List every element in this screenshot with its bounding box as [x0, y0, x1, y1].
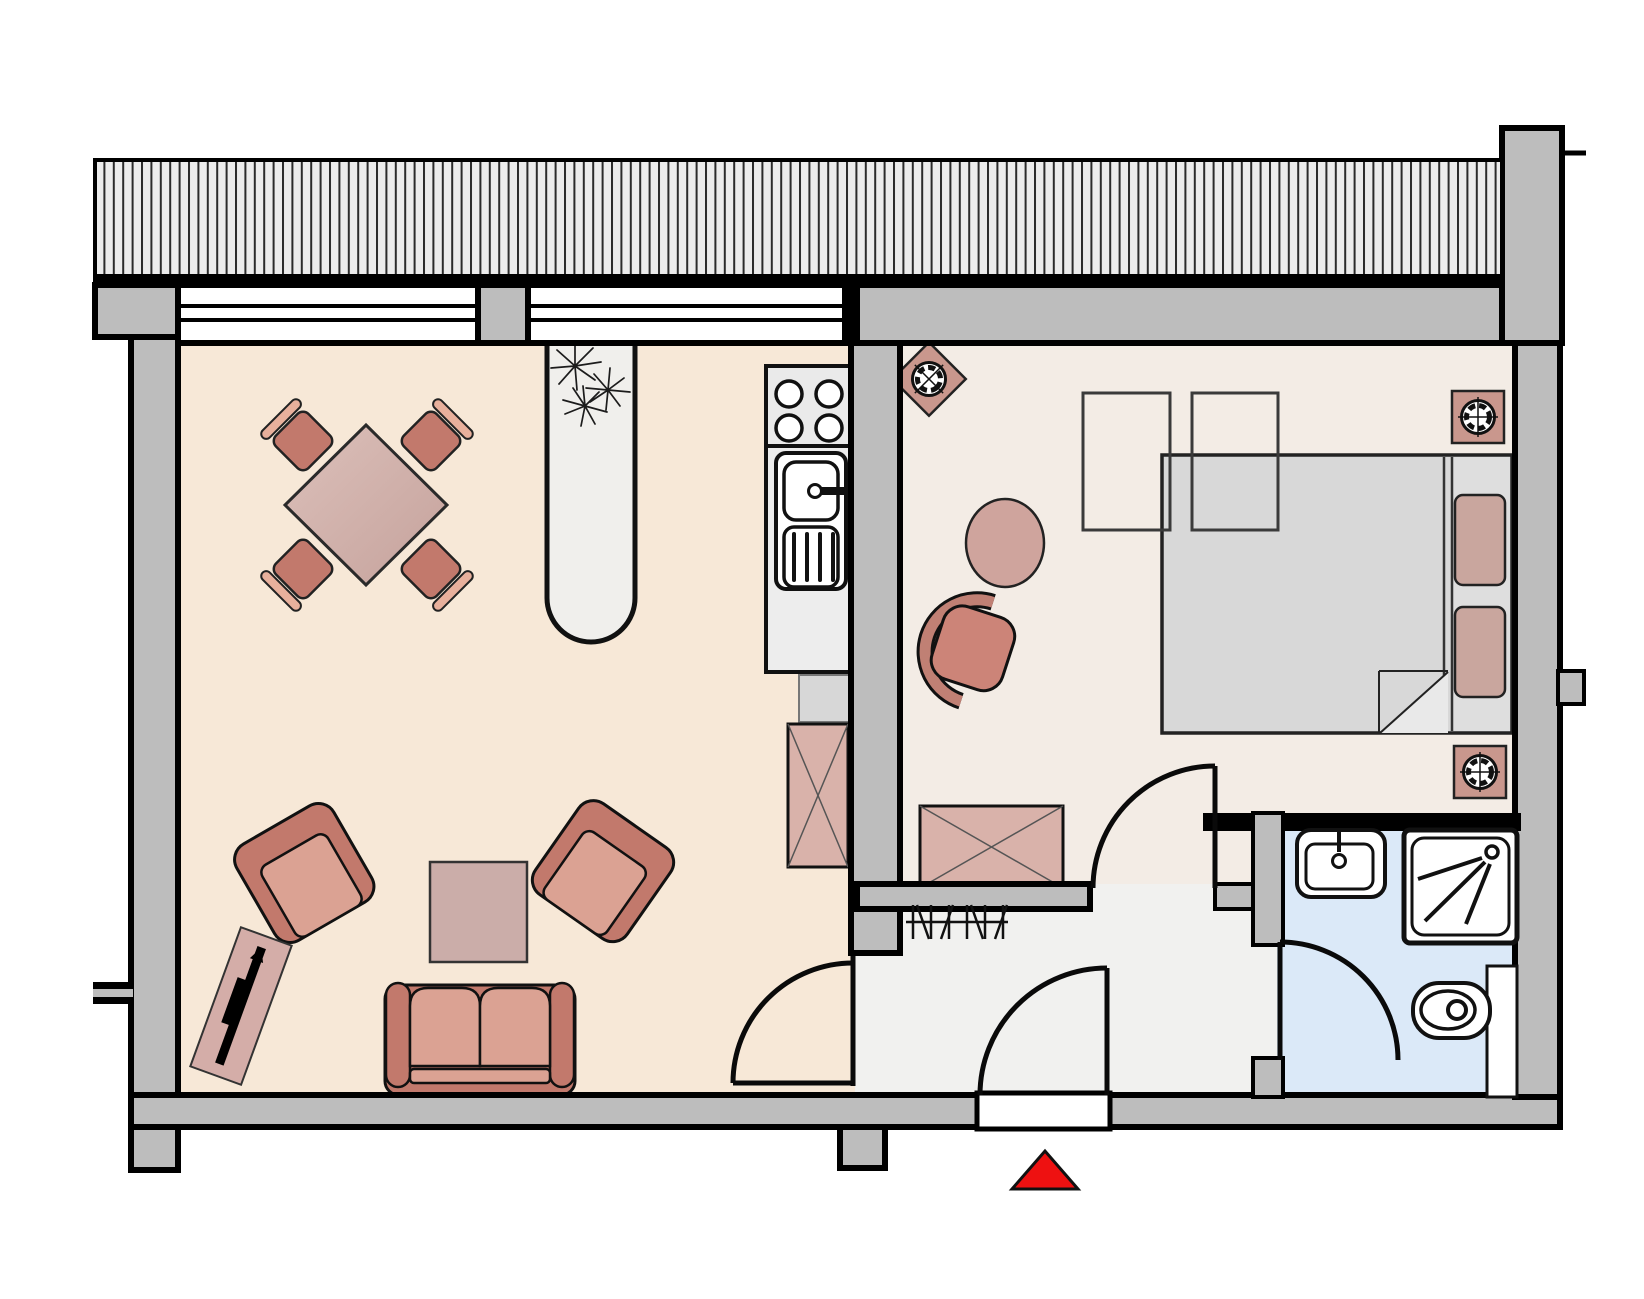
- wall-hall-bath-lower: [1253, 1058, 1283, 1097]
- wall-door-jamb: [1215, 884, 1253, 909]
- entrance-marker-triangle-icon: [1012, 1151, 1078, 1189]
- wall-bedroom-hall: [857, 884, 1090, 909]
- hallway-floor: [855, 884, 1283, 1097]
- kitchen-sink-icon: [776, 453, 846, 589]
- wall-kitchen-bedroom-divider: [851, 343, 900, 953]
- floor-plan-page: [0, 0, 1644, 1299]
- wall-bottom: [131, 1095, 1560, 1127]
- kitchen-cabinet-x-symbol: [788, 724, 848, 867]
- window-band-left: [178, 285, 478, 343]
- wall-top-left-step: [95, 285, 178, 337]
- wash-basin-icon: [1297, 828, 1385, 897]
- window-pier: [478, 285, 528, 343]
- speaker-square-icon: [1454, 746, 1506, 798]
- pillow: [1455, 607, 1505, 697]
- floor-plan-drawing: [0, 0, 1644, 1299]
- stove-icon: [766, 366, 852, 446]
- window-band-right: [528, 285, 845, 343]
- wall-hall-bath-upper: [1253, 813, 1283, 945]
- speaker-square-icon: [1452, 391, 1504, 443]
- pillow: [1455, 495, 1505, 585]
- wall-right-notch: [1558, 671, 1584, 704]
- dresser-x-symbol: [920, 806, 1063, 888]
- round-side-table: [966, 499, 1044, 587]
- wall-top-right-column: [1502, 128, 1562, 343]
- shower-icon: [1404, 830, 1517, 943]
- toilet-icon: [1413, 983, 1490, 1038]
- dining-set: [259, 397, 475, 613]
- sofa: [385, 983, 575, 1095]
- double-bed: [1162, 455, 1512, 733]
- balcony-hatched-strip: [93, 160, 1504, 285]
- appliance-square: [799, 675, 850, 722]
- coffee-table: [430, 862, 527, 962]
- wall-bottom-stub: [840, 1127, 885, 1168]
- wall-left: [131, 337, 178, 1170]
- toilet-cistern: [1487, 966, 1517, 1097]
- plant-alcove: [547, 339, 635, 642]
- wall-bedroom-top: [857, 285, 1502, 343]
- wall-left-stub: [93, 982, 133, 1004]
- entrance-threshold: [977, 1093, 1110, 1129]
- wall-right: [1515, 343, 1560, 1097]
